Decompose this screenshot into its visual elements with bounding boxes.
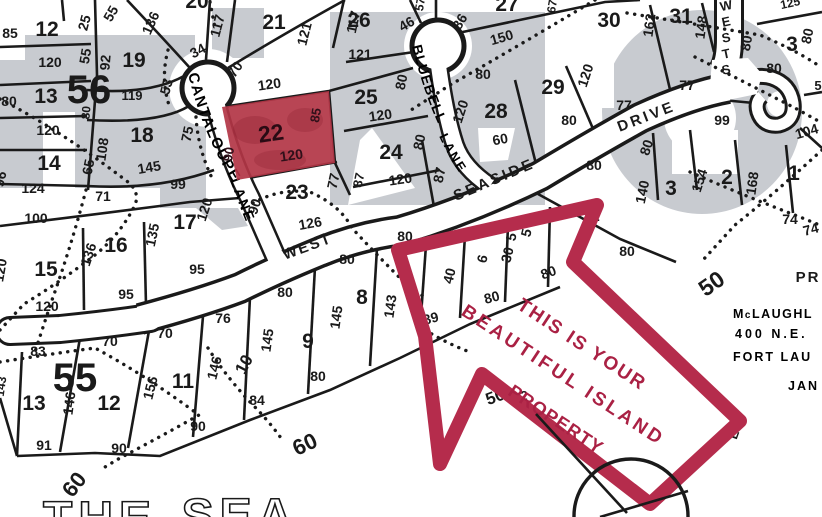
svg-text:119: 119	[122, 88, 143, 103]
svg-text:120: 120	[38, 54, 62, 70]
svg-text:31: 31	[669, 5, 693, 28]
svg-text:THE: THE	[43, 493, 157, 517]
svg-text:55: 55	[53, 356, 98, 400]
svg-text:74: 74	[782, 211, 798, 227]
svg-text:120: 120	[388, 169, 414, 188]
svg-text:168: 168	[743, 170, 762, 196]
svg-text:90: 90	[190, 418, 206, 434]
svg-text:1: 1	[788, 162, 800, 185]
svg-text:80: 80	[586, 157, 602, 173]
svg-text:12: 12	[35, 18, 58, 41]
svg-text:80: 80	[310, 368, 326, 384]
svg-text:80: 80	[619, 243, 635, 259]
svg-text:2: 2	[721, 166, 733, 189]
svg-text:19: 19	[122, 49, 145, 72]
svg-text:77: 77	[679, 77, 695, 93]
svg-text:120: 120	[35, 298, 59, 314]
svg-text:400 N.E.: 400 N.E.	[735, 327, 808, 341]
svg-text:11: 11	[172, 370, 195, 393]
svg-text:120: 120	[279, 145, 305, 164]
svg-text:15: 15	[34, 258, 58, 281]
svg-text:80: 80	[475, 66, 491, 82]
svg-text:80: 80	[78, 105, 93, 120]
svg-text:162: 162	[640, 12, 659, 38]
svg-text:PR: PR	[796, 269, 821, 286]
svg-text:95: 95	[118, 286, 134, 302]
svg-text:120: 120	[36, 122, 60, 138]
svg-text:22: 22	[256, 118, 285, 147]
svg-text:23: 23	[285, 181, 308, 204]
svg-text:McLAUGHL: McLAUGHL	[733, 307, 813, 321]
svg-text:13: 13	[34, 85, 57, 108]
svg-text:57: 57	[412, 0, 428, 12]
svg-text:120: 120	[368, 105, 394, 124]
svg-text:8: 8	[356, 286, 368, 309]
svg-text:99: 99	[170, 176, 186, 192]
svg-text:84: 84	[249, 392, 265, 408]
svg-text:27: 27	[495, 0, 518, 16]
svg-text:91: 91	[36, 437, 52, 453]
svg-text:55: 55	[76, 47, 94, 65]
svg-text:60: 60	[491, 130, 509, 148]
svg-text:12: 12	[97, 392, 120, 415]
svg-text:90: 90	[220, 146, 237, 163]
svg-text:SEA: SEA	[182, 490, 299, 517]
svg-text:80: 80	[277, 284, 293, 300]
svg-text:100: 100	[24, 210, 48, 226]
svg-text:21: 21	[262, 11, 286, 34]
svg-text:90: 90	[111, 440, 127, 456]
svg-text:70: 70	[157, 325, 173, 341]
svg-text:5: 5	[814, 78, 821, 93]
svg-text:80: 80	[737, 34, 755, 52]
svg-text:29: 29	[541, 76, 564, 99]
svg-text:145: 145	[258, 327, 277, 353]
svg-text:80: 80	[1, 93, 17, 109]
svg-text:124: 124	[21, 180, 45, 196]
svg-text:30: 30	[597, 9, 620, 32]
svg-text:77: 77	[616, 97, 632, 113]
svg-text:80: 80	[766, 60, 782, 76]
svg-text:FORT LAU: FORT LAU	[733, 350, 812, 364]
svg-text:87: 87	[350, 171, 368, 188]
svg-text:120: 120	[257, 74, 283, 93]
svg-text:67: 67	[544, 0, 560, 14]
svg-text:18: 18	[130, 124, 154, 147]
svg-text:80: 80	[339, 251, 355, 267]
svg-text:25: 25	[354, 86, 378, 109]
svg-text:95: 95	[189, 261, 205, 277]
svg-text:80: 80	[561, 112, 577, 128]
svg-text:16: 16	[104, 234, 127, 257]
svg-text:143: 143	[381, 293, 400, 319]
svg-text:3: 3	[665, 177, 677, 200]
svg-text:71: 71	[95, 188, 111, 204]
svg-text:JAN: JAN	[788, 379, 819, 393]
svg-text:85: 85	[307, 107, 324, 124]
svg-text:145: 145	[327, 304, 346, 330]
svg-text:13: 13	[22, 392, 45, 415]
svg-text:28: 28	[484, 100, 508, 123]
svg-text:121: 121	[348, 46, 372, 62]
svg-text:70: 70	[102, 333, 118, 349]
svg-text:3: 3	[786, 33, 798, 56]
svg-text:148: 148	[692, 14, 711, 40]
svg-text:26: 26	[347, 9, 370, 32]
svg-text:99: 99	[714, 112, 730, 128]
svg-text:83: 83	[30, 343, 46, 359]
svg-text:85: 85	[2, 25, 18, 41]
svg-text:14: 14	[37, 152, 61, 175]
svg-text:56: 56	[67, 68, 112, 112]
svg-text:24: 24	[379, 141, 403, 164]
svg-text:9: 9	[302, 330, 314, 353]
svg-text:20: 20	[185, 0, 208, 13]
svg-text:108: 108	[93, 136, 112, 162]
svg-text:76: 76	[215, 310, 231, 326]
